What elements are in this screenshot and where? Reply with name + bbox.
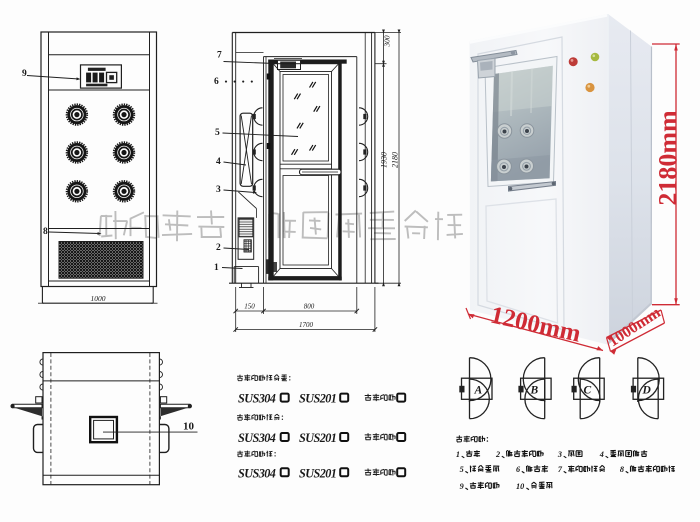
svg-text:6: 6 (214, 77, 219, 87)
svg-text:4: 4 (216, 157, 221, 167)
svg-text:SUS201: SUS201 (299, 431, 336, 445)
svg-text:10: 10 (516, 482, 524, 491)
svg-text:1700: 1700 (299, 321, 314, 329)
svg-text:SUS201: SUS201 (299, 392, 336, 406)
svg-text:9: 9 (460, 482, 464, 491)
svg-text:3: 3 (216, 185, 221, 195)
svg-text:SUS304: SUS304 (238, 392, 276, 406)
svg-text:5: 5 (215, 128, 220, 138)
svg-text:D: D (642, 385, 652, 397)
svg-text:2: 2 (216, 243, 221, 253)
svg-text:B: B (530, 385, 539, 397)
svg-text:7: 7 (217, 51, 222, 61)
svg-text:SUS304: SUS304 (238, 466, 276, 480)
svg-text:C: C (584, 385, 592, 397)
svg-text:8: 8 (43, 227, 48, 237)
svg-text:800: 800 (304, 303, 315, 311)
svg-text:2180: 2180 (391, 152, 400, 168)
svg-text:A: A (474, 385, 483, 397)
svg-text:150: 150 (244, 303, 255, 311)
svg-text:9: 9 (22, 69, 27, 79)
svg-text:1930: 1930 (380, 152, 389, 168)
svg-text:4: 4 (599, 450, 604, 459)
svg-text:10: 10 (183, 421, 195, 433)
svg-text:1000: 1000 (91, 294, 106, 303)
svg-text:1: 1 (456, 450, 460, 459)
svg-text:8: 8 (620, 465, 624, 474)
svg-text:SUS304: SUS304 (238, 431, 276, 445)
svg-text:3: 3 (557, 450, 562, 459)
svg-text:2: 2 (495, 450, 500, 459)
svg-text:2180mm: 2180mm (654, 110, 683, 206)
svg-text:1: 1 (214, 263, 219, 273)
svg-text:5: 5 (460, 465, 464, 474)
svg-text:SUS201: SUS201 (299, 466, 336, 480)
svg-text:300: 300 (383, 35, 392, 48)
